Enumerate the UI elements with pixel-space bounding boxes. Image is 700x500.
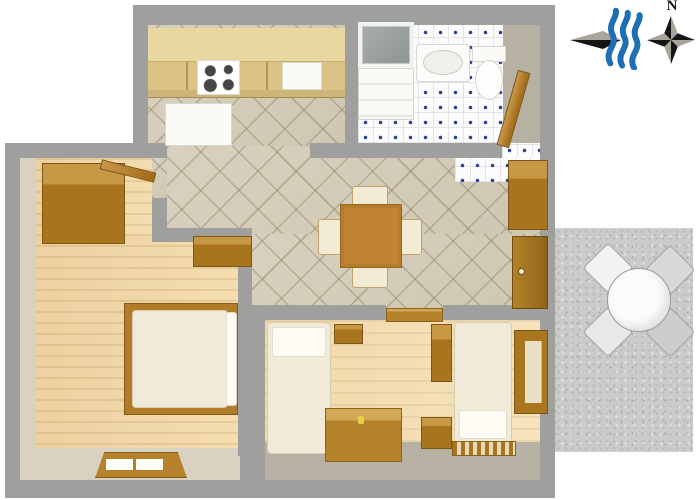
bedroom-wardrobe (42, 163, 125, 244)
doorway-threshold (386, 308, 443, 322)
wall-below-bathroom (345, 143, 502, 158)
floor-plan-image: N (0, 0, 700, 500)
stove (197, 60, 240, 95)
compass-north-label: N (655, 0, 689, 15)
bedroom-window (95, 452, 187, 478)
toilet-bowl (475, 60, 503, 100)
candle (358, 416, 364, 424)
shower (358, 22, 414, 68)
wall-top-left (5, 143, 167, 158)
single-bed-right-pillow (459, 410, 507, 439)
double-bed-mattress (132, 310, 228, 408)
bedroom-left-wall-face (20, 158, 36, 450)
sea-direction-arrow-icon (570, 28, 624, 52)
terrace-table (607, 268, 671, 332)
wall-kitchen-bathroom (345, 5, 358, 145)
bathroom-sink (416, 44, 470, 82)
refrigerator (165, 103, 232, 146)
kitchen-upper-cabinet (148, 28, 345, 62)
living-window (514, 330, 548, 414)
living-cabinet-small (334, 324, 363, 344)
sea-waves-icon (600, 7, 654, 72)
dining-table (340, 204, 402, 268)
hall-cabinet (508, 160, 548, 230)
nightstand (421, 417, 452, 449)
entrance-door (512, 236, 548, 309)
washing-machine (358, 68, 414, 120)
bedside-rug (452, 441, 516, 456)
compass-rose-icon (647, 16, 695, 64)
double-bed-pillow (226, 312, 237, 406)
bedroom-nook-cabinet (193, 236, 252, 267)
living-wardrobe (431, 324, 452, 382)
kitchen-sink (282, 62, 322, 90)
kitchen-counter-edge (148, 90, 345, 98)
dining-chair-left (318, 219, 342, 255)
wall-bedroom-living-v (238, 308, 265, 456)
single-bed-left-pillow (272, 327, 326, 357)
